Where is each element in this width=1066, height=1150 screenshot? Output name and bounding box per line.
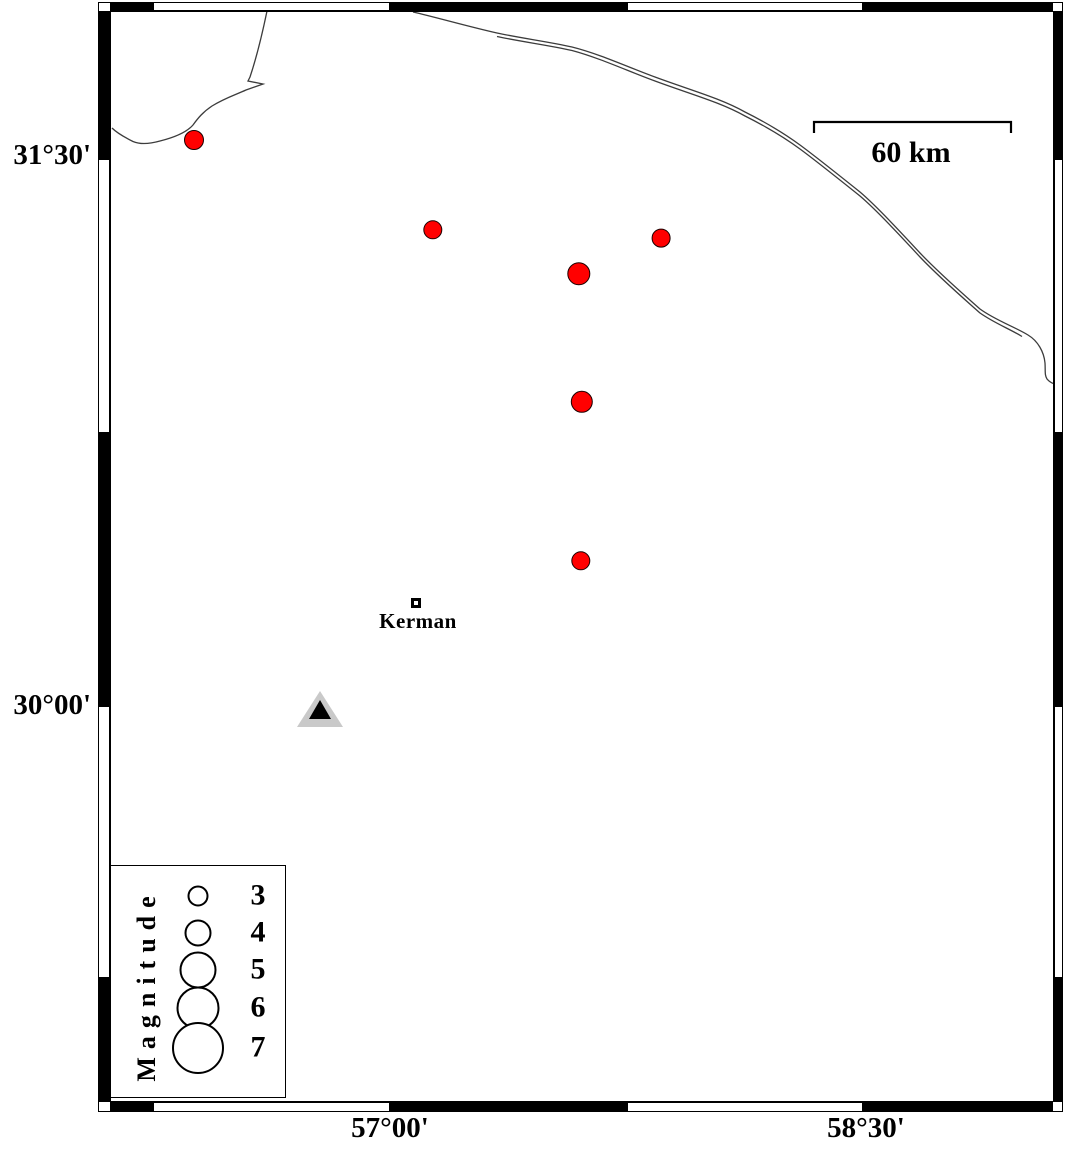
frame-segment-bottom	[153, 1102, 390, 1112]
latitude-label-30-00: 30°00'	[0, 689, 91, 722]
longitude-label-58-30: 58°30'	[827, 1112, 905, 1145]
frame-segment-top	[863, 2, 1053, 11]
frame-segment-right	[1054, 159, 1063, 433]
legend-title: Magnitude	[132, 888, 162, 1081]
frame-segment-top	[153, 2, 390, 11]
frame-segment-top	[390, 2, 627, 11]
legend-magnitude-label: 7	[251, 1030, 266, 1064]
longitude-label-57-00: 57°00'	[351, 1112, 429, 1145]
scale-bar-label: 60 km	[871, 136, 950, 170]
frame-segment-bottom	[627, 1102, 863, 1112]
legend-magnitude-label: 5	[251, 952, 266, 986]
legend-magnitude-circle	[188, 886, 209, 907]
legend-magnitude-label: 4	[251, 915, 266, 949]
frame-segment-top	[110, 2, 153, 11]
city-label: Kerman	[379, 609, 457, 634]
frame-segment-bottom	[110, 1102, 153, 1112]
frame-segment-left	[98, 159, 110, 433]
legend-magnitude-circle	[172, 1022, 224, 1074]
frame-segment-right	[1054, 706, 1063, 978]
frame-segment-right	[1054, 433, 1063, 706]
frame-segment-right	[1054, 11, 1063, 159]
frame-segment-top	[627, 2, 863, 11]
legend-magnitude-label: 6	[251, 990, 266, 1024]
city-marker-square	[411, 598, 421, 608]
seismicity-map: 31°30' 30°00' 57°00' 58°30' 60 km Kerman…	[0, 0, 1066, 1150]
earthquake-marker	[652, 229, 671, 248]
latitude-label-31-30: 31°30'	[0, 139, 91, 172]
frame-segment-bottom	[390, 1102, 627, 1112]
frame-segment-left	[98, 11, 110, 159]
frame-segment-left	[98, 978, 110, 1102]
earthquake-marker	[184, 130, 204, 150]
frame-segment-left	[98, 433, 110, 706]
frame-segment-left	[98, 706, 110, 978]
legend-magnitude-circle	[185, 920, 212, 947]
frame-segment-right	[1054, 978, 1063, 1102]
legend-magnitude-label: 3	[251, 878, 266, 912]
legend-magnitude-circle	[180, 952, 217, 989]
frame-segment-bottom	[863, 1102, 1053, 1112]
